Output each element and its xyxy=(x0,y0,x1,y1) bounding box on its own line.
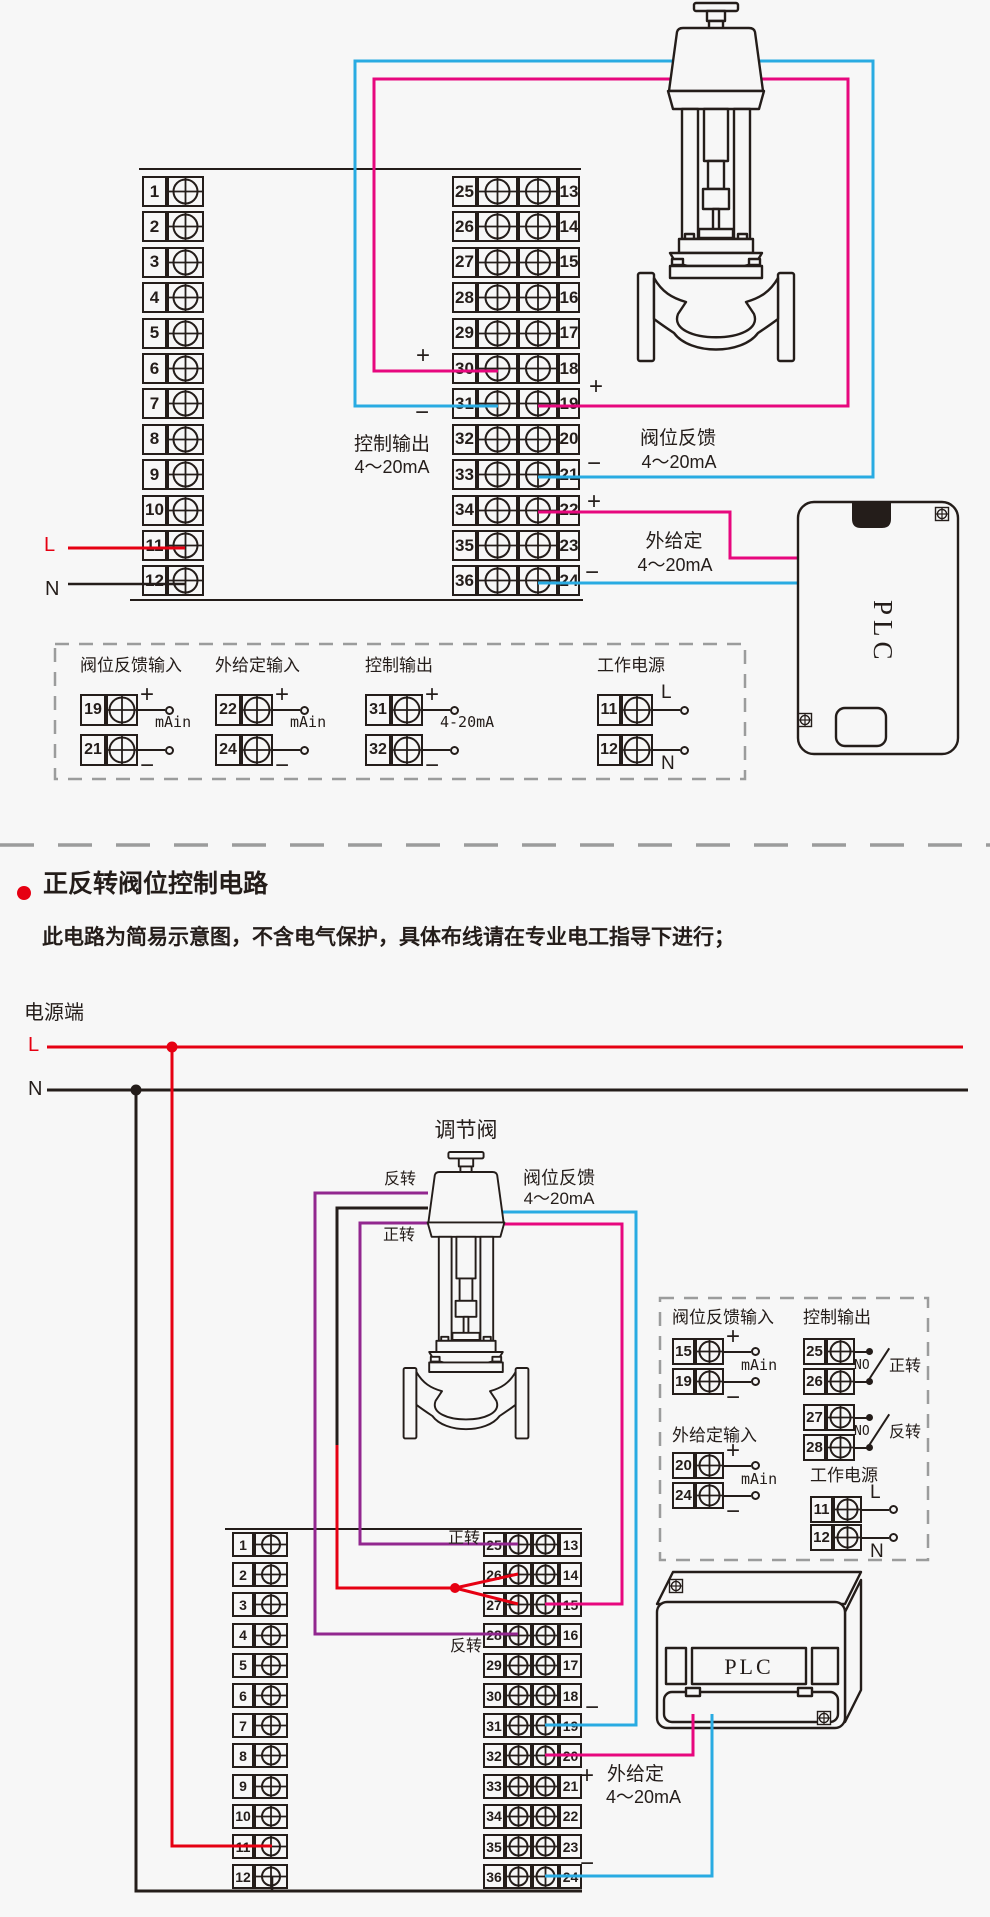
terminal-36: 36 xyxy=(452,565,477,596)
terminal-8: 8 xyxy=(142,424,167,455)
screw-terminal xyxy=(532,1653,559,1678)
neutral-label: N xyxy=(28,1078,42,1100)
screw-terminal xyxy=(477,424,518,455)
legend-sign: − xyxy=(275,754,289,778)
plus-sign: + xyxy=(589,375,603,399)
legend-wire xyxy=(862,1537,889,1539)
legend-wire xyxy=(724,1381,751,1383)
screw-terminal xyxy=(518,388,558,419)
minus-sign: − xyxy=(585,1696,599,1720)
legend-sign: − xyxy=(425,754,439,778)
screw-terminal xyxy=(826,1404,855,1431)
legend-mid-label: mAin xyxy=(741,1471,777,1488)
legend-mid-label: mAin xyxy=(741,1357,777,1374)
terminal-3: 3 xyxy=(232,1592,254,1617)
screw-terminal xyxy=(167,211,204,242)
reverse-wire-label: 反转 xyxy=(450,1638,482,1656)
minus-sign: − xyxy=(580,1852,594,1876)
terminal-35: 35 xyxy=(483,1834,505,1859)
screw-terminal xyxy=(518,459,558,490)
live-label: L xyxy=(44,534,55,556)
terminal-28: 28 xyxy=(452,282,477,313)
screw-terminal xyxy=(254,1804,288,1829)
terminal-30: 30 xyxy=(452,353,477,384)
legend-wire xyxy=(653,749,680,751)
legend-wire xyxy=(724,1465,751,1467)
screw-terminal xyxy=(477,495,518,526)
screw-terminal xyxy=(167,459,204,490)
legend-terminal-11: 11 xyxy=(810,1496,833,1523)
section-subtitle: 此电路为简易示意图，不含电气保护，具体布线请在专业电工指导下进行； xyxy=(42,926,735,950)
terminal-31: 31 xyxy=(452,388,477,419)
valve-feedback-label: 阀位反馈 xyxy=(523,1168,595,1188)
screw-terminal xyxy=(695,1368,724,1395)
screw-terminal xyxy=(477,388,518,419)
legend-terminal-15: 15 xyxy=(672,1338,695,1365)
terminal-17: 17 xyxy=(559,1653,582,1678)
screw-terminal xyxy=(532,1592,559,1617)
terminal-circle xyxy=(300,746,309,755)
screw-terminal xyxy=(241,734,273,766)
legend-terminal-24: 24 xyxy=(672,1482,695,1509)
legend-sign: + xyxy=(726,1325,740,1349)
screw-terminal xyxy=(505,1623,532,1648)
screw-terminal xyxy=(532,1713,559,1738)
section-bullet xyxy=(17,886,31,900)
terminal-33: 33 xyxy=(452,459,477,490)
valve-feedback-range: 4～20mA xyxy=(641,452,716,472)
terminal-32: 32 xyxy=(483,1743,505,1768)
terminal-18: 18 xyxy=(559,1683,582,1708)
legend-terminal-12: 12 xyxy=(597,734,621,766)
screw-terminal xyxy=(621,734,653,766)
screw-terminal xyxy=(505,1804,532,1829)
terminal-23: 23 xyxy=(558,530,580,561)
screw-terminal xyxy=(505,1683,532,1708)
legend-terminal-11: 11 xyxy=(597,694,621,726)
control-valve-label: 调节阀 xyxy=(435,1119,498,1143)
screw-terminal xyxy=(167,530,204,561)
legend-wire xyxy=(653,709,680,711)
screw-terminal xyxy=(505,1653,532,1678)
screw-terminal xyxy=(167,353,204,384)
terminal-27: 27 xyxy=(483,1592,505,1617)
legend-wire xyxy=(273,749,300,751)
screw-terminal xyxy=(518,495,558,526)
screw-terminal xyxy=(505,1774,532,1799)
legend-mid-label: mAin xyxy=(290,714,326,731)
terminal-circle xyxy=(751,1347,760,1356)
terminal-11: 11 xyxy=(232,1834,254,1859)
terminal-7: 7 xyxy=(142,388,167,419)
screw-terminal xyxy=(518,530,558,561)
terminal-15: 15 xyxy=(558,247,580,278)
legend-title: 工作电源 xyxy=(810,1466,878,1485)
terminal-circle xyxy=(889,1505,898,1514)
screw-terminal xyxy=(532,1774,559,1799)
screw-terminal xyxy=(241,694,273,726)
legend-terminal-25: 25 xyxy=(803,1338,826,1365)
terminal-21: 21 xyxy=(558,459,580,490)
screw-terminal xyxy=(826,1368,855,1395)
legend-wire xyxy=(273,709,300,711)
terminal-circle xyxy=(751,1461,760,1470)
screw-terminal xyxy=(167,176,204,207)
legend-terminal-32: 32 xyxy=(365,734,391,766)
terminal-10: 10 xyxy=(142,495,167,526)
minus-sign: − xyxy=(587,452,601,476)
screw-terminal xyxy=(477,565,518,596)
legend-sign: N xyxy=(661,754,675,773)
terminal-19: 19 xyxy=(558,388,580,419)
terminal-25: 25 xyxy=(483,1532,505,1557)
terminal-35: 35 xyxy=(452,530,477,561)
screw-terminal xyxy=(254,1683,288,1708)
legend-sign: − xyxy=(726,1386,740,1410)
legend-mid-label: mAin xyxy=(155,714,191,731)
legend-title: 外给定输入 xyxy=(672,1426,757,1445)
screw-terminal xyxy=(532,1834,559,1859)
legend-sign: + xyxy=(275,683,289,707)
terminal-circle xyxy=(450,746,459,755)
terminal-15: 15 xyxy=(559,1592,582,1617)
screw-terminal xyxy=(254,1834,288,1859)
screw-terminal xyxy=(477,459,518,490)
screw-terminal xyxy=(254,1592,288,1617)
terminal-2: 2 xyxy=(142,211,167,242)
legend-title: 外给定输入 xyxy=(215,656,300,675)
terminal-9: 9 xyxy=(142,459,167,490)
screw-terminal xyxy=(518,318,558,349)
terminal-10: 10 xyxy=(232,1804,254,1829)
legend-terminal-12: 12 xyxy=(810,1524,833,1551)
terminal-24: 24 xyxy=(559,1864,582,1889)
terminal-8: 8 xyxy=(232,1743,254,1768)
screw-terminal xyxy=(477,176,518,207)
legend-wire xyxy=(724,1351,751,1353)
no-label: NO xyxy=(854,1425,870,1440)
screw-terminal xyxy=(532,1864,559,1889)
terminal-blocks-layer: 1234567891011122513261427152816291730183… xyxy=(0,0,990,1917)
screw-terminal xyxy=(167,565,204,596)
plus-sign: + xyxy=(416,344,430,368)
screw-terminal xyxy=(477,530,518,561)
terminal-12: 12 xyxy=(232,1864,254,1889)
screw-terminal xyxy=(826,1434,855,1461)
legend-sign: N xyxy=(870,1542,884,1561)
legend-title: 控制输出 xyxy=(365,656,433,675)
terminal-34: 34 xyxy=(483,1804,505,1829)
terminal-19: 19 xyxy=(559,1713,582,1738)
screw-terminal xyxy=(167,247,204,278)
screw-terminal xyxy=(254,1562,288,1587)
section-title: 正反转阀位控制电路 xyxy=(43,870,268,898)
terminal-25: 25 xyxy=(452,176,477,207)
screw-terminal xyxy=(518,247,558,278)
legend-terminal-19: 19 xyxy=(80,694,106,726)
forward-wire-label: 正转 xyxy=(448,1530,480,1548)
neutral-label: N xyxy=(45,578,59,600)
screw-terminal xyxy=(532,1562,559,1587)
forward-label: 正转 xyxy=(383,1227,415,1245)
terminal-33: 33 xyxy=(483,1774,505,1799)
legend-wire xyxy=(724,1495,751,1497)
valve-wiring-diagram: 1234567891011122513261427152816291730183… xyxy=(0,0,990,1917)
contact-dot xyxy=(866,1348,873,1355)
screw-terminal xyxy=(106,694,138,726)
external-setpoint-range: 4～20mA xyxy=(637,555,712,575)
screw-terminal xyxy=(518,565,558,596)
legend-wire xyxy=(423,749,450,751)
terminal-23: 23 xyxy=(559,1834,582,1859)
legend-sign: + xyxy=(726,1439,740,1463)
terminal-circle xyxy=(165,746,174,755)
legend-sign: + xyxy=(140,683,154,707)
screw-terminal xyxy=(621,694,653,726)
legend-sign: − xyxy=(140,754,154,778)
terminal-27: 27 xyxy=(452,247,477,278)
screw-terminal xyxy=(391,694,423,726)
plus-sign: + xyxy=(587,490,601,514)
legend-title: 阀位反馈输入 xyxy=(80,656,182,675)
contact-direction-label: 正转 xyxy=(889,1358,921,1376)
legend-terminal-24: 24 xyxy=(215,734,241,766)
live-label: L xyxy=(28,1034,39,1056)
terminal-18: 18 xyxy=(558,353,580,384)
terminal-26: 26 xyxy=(452,211,477,242)
terminal-6: 6 xyxy=(142,353,167,384)
screw-terminal xyxy=(518,176,558,207)
terminal-16: 16 xyxy=(559,1623,582,1648)
screw-terminal xyxy=(391,734,423,766)
power-terminal-label: 电源端 xyxy=(24,1002,84,1024)
legend-wire xyxy=(138,709,165,711)
screw-terminal xyxy=(532,1532,559,1557)
legend-sign: − xyxy=(726,1500,740,1524)
screw-terminal xyxy=(167,495,204,526)
screw-terminal xyxy=(505,1743,532,1768)
terminal-14: 14 xyxy=(559,1562,582,1587)
screw-terminal xyxy=(477,318,518,349)
legend-title: 控制输出 xyxy=(803,1308,871,1327)
legend-terminal-31: 31 xyxy=(365,694,391,726)
legend-wire xyxy=(423,709,450,711)
reverse-label: 反转 xyxy=(384,1171,416,1189)
terminal-32: 32 xyxy=(452,424,477,455)
screw-terminal xyxy=(254,1532,288,1557)
terminal-2: 2 xyxy=(232,1562,254,1587)
screw-terminal xyxy=(695,1452,724,1479)
terminal-circle xyxy=(751,1491,760,1500)
terminal-6: 6 xyxy=(232,1683,254,1708)
screw-terminal xyxy=(167,424,204,455)
screw-terminal xyxy=(695,1482,724,1509)
screw-terminal xyxy=(477,211,518,242)
external-setpoint-range: 4～20mA xyxy=(606,1787,681,1807)
terminal-circle xyxy=(889,1533,898,1542)
legend-mid-label: 4-20mA xyxy=(440,714,494,731)
screw-terminal xyxy=(254,1623,288,1648)
screw-terminal xyxy=(106,734,138,766)
screw-terminal xyxy=(532,1743,559,1768)
terminal-5: 5 xyxy=(142,318,167,349)
valve-feedback-label: 阀位反馈 xyxy=(640,428,716,449)
screw-terminal xyxy=(532,1623,559,1648)
legend-terminal-19: 19 xyxy=(672,1368,695,1395)
terminal-1: 1 xyxy=(232,1532,254,1557)
screw-terminal xyxy=(505,1713,532,1738)
terminal-28: 28 xyxy=(483,1623,505,1648)
screw-terminal xyxy=(518,424,558,455)
legend-wire xyxy=(862,1509,889,1511)
terminal-36: 36 xyxy=(483,1864,505,1889)
external-setpoint-label: 外给定 xyxy=(607,1764,664,1785)
terminal-24: 24 xyxy=(558,565,580,596)
terminal-13: 13 xyxy=(559,1532,582,1557)
screw-terminal xyxy=(518,211,558,242)
terminal-20: 20 xyxy=(559,1743,582,1768)
terminal-22: 22 xyxy=(558,495,580,526)
screw-terminal xyxy=(254,1774,288,1799)
legend-terminal-20: 20 xyxy=(672,1452,695,1479)
legend-terminal-27: 27 xyxy=(803,1404,826,1431)
terminal-4: 4 xyxy=(232,1623,254,1648)
screw-terminal xyxy=(826,1338,855,1365)
external-setpoint-label: 外给定 xyxy=(645,531,702,552)
screw-terminal xyxy=(695,1338,724,1365)
legend-terminal-21: 21 xyxy=(80,734,106,766)
terminal-13: 13 xyxy=(558,176,580,207)
screw-terminal xyxy=(167,282,204,313)
legend-title: 阀位反馈输入 xyxy=(672,1308,774,1327)
terminal-22: 22 xyxy=(559,1804,582,1829)
screw-terminal xyxy=(254,1653,288,1678)
screw-terminal xyxy=(518,353,558,384)
screw-terminal xyxy=(833,1496,862,1523)
screw-terminal xyxy=(477,353,518,384)
legend-title: 工作电源 xyxy=(597,656,665,675)
screw-terminal xyxy=(167,318,204,349)
ctrl-output-label: 控制输出 xyxy=(354,434,430,455)
screw-terminal xyxy=(505,1532,532,1557)
plus-sign: + xyxy=(580,1764,594,1788)
screw-terminal xyxy=(254,1713,288,1738)
terminal-circle xyxy=(680,706,689,715)
terminal-20: 20 xyxy=(558,424,580,455)
screw-terminal xyxy=(254,1743,288,1768)
terminal-29: 29 xyxy=(452,318,477,349)
terminal-17: 17 xyxy=(558,318,580,349)
legend-terminal-26: 26 xyxy=(803,1368,826,1395)
valve-feedback-range: 4～20mA xyxy=(524,1189,595,1208)
screw-terminal xyxy=(505,1864,532,1889)
screw-terminal xyxy=(532,1804,559,1829)
legend-terminal-28: 28 xyxy=(803,1434,826,1461)
no-label: NO xyxy=(854,1359,870,1374)
screw-terminal xyxy=(477,247,518,278)
screw-terminal xyxy=(833,1524,862,1551)
terminal-31: 31 xyxy=(483,1713,505,1738)
legend-sign: L xyxy=(870,1483,881,1502)
terminal-3: 3 xyxy=(142,247,167,278)
screw-terminal xyxy=(532,1683,559,1708)
screw-terminal xyxy=(505,1592,532,1617)
terminal-34: 34 xyxy=(452,495,477,526)
screw-terminal xyxy=(505,1834,532,1859)
ctrl-output-range: 4～20mA xyxy=(354,457,429,477)
terminal-16: 16 xyxy=(558,282,580,313)
screw-terminal xyxy=(505,1562,532,1587)
terminal-14: 14 xyxy=(558,211,580,242)
terminal-21: 21 xyxy=(559,1774,582,1799)
legend-wire xyxy=(138,749,165,751)
terminal-11: 11 xyxy=(142,530,167,561)
legend-sign: L xyxy=(661,683,672,702)
terminal-26: 26 xyxy=(483,1562,505,1587)
terminal-4: 4 xyxy=(142,282,167,313)
terminal-29: 29 xyxy=(483,1653,505,1678)
contact-direction-label: 反转 xyxy=(889,1424,921,1442)
screw-terminal xyxy=(254,1864,288,1889)
terminal-circle xyxy=(680,746,689,755)
legend-sign: + xyxy=(425,683,439,707)
terminal-12: 12 xyxy=(142,565,167,596)
screw-terminal xyxy=(167,388,204,419)
minus-sign: − xyxy=(415,401,429,425)
terminal-1: 1 xyxy=(142,176,167,207)
terminal-5: 5 xyxy=(232,1653,254,1678)
screw-terminal xyxy=(518,282,558,313)
terminal-9: 9 xyxy=(232,1774,254,1799)
terminal-7: 7 xyxy=(232,1713,254,1738)
terminal-circle xyxy=(751,1377,760,1386)
minus-sign: − xyxy=(585,561,599,585)
screw-terminal xyxy=(477,282,518,313)
contact-dot xyxy=(866,1414,873,1421)
legend-terminal-22: 22 xyxy=(215,694,241,726)
terminal-30: 30 xyxy=(483,1683,505,1708)
